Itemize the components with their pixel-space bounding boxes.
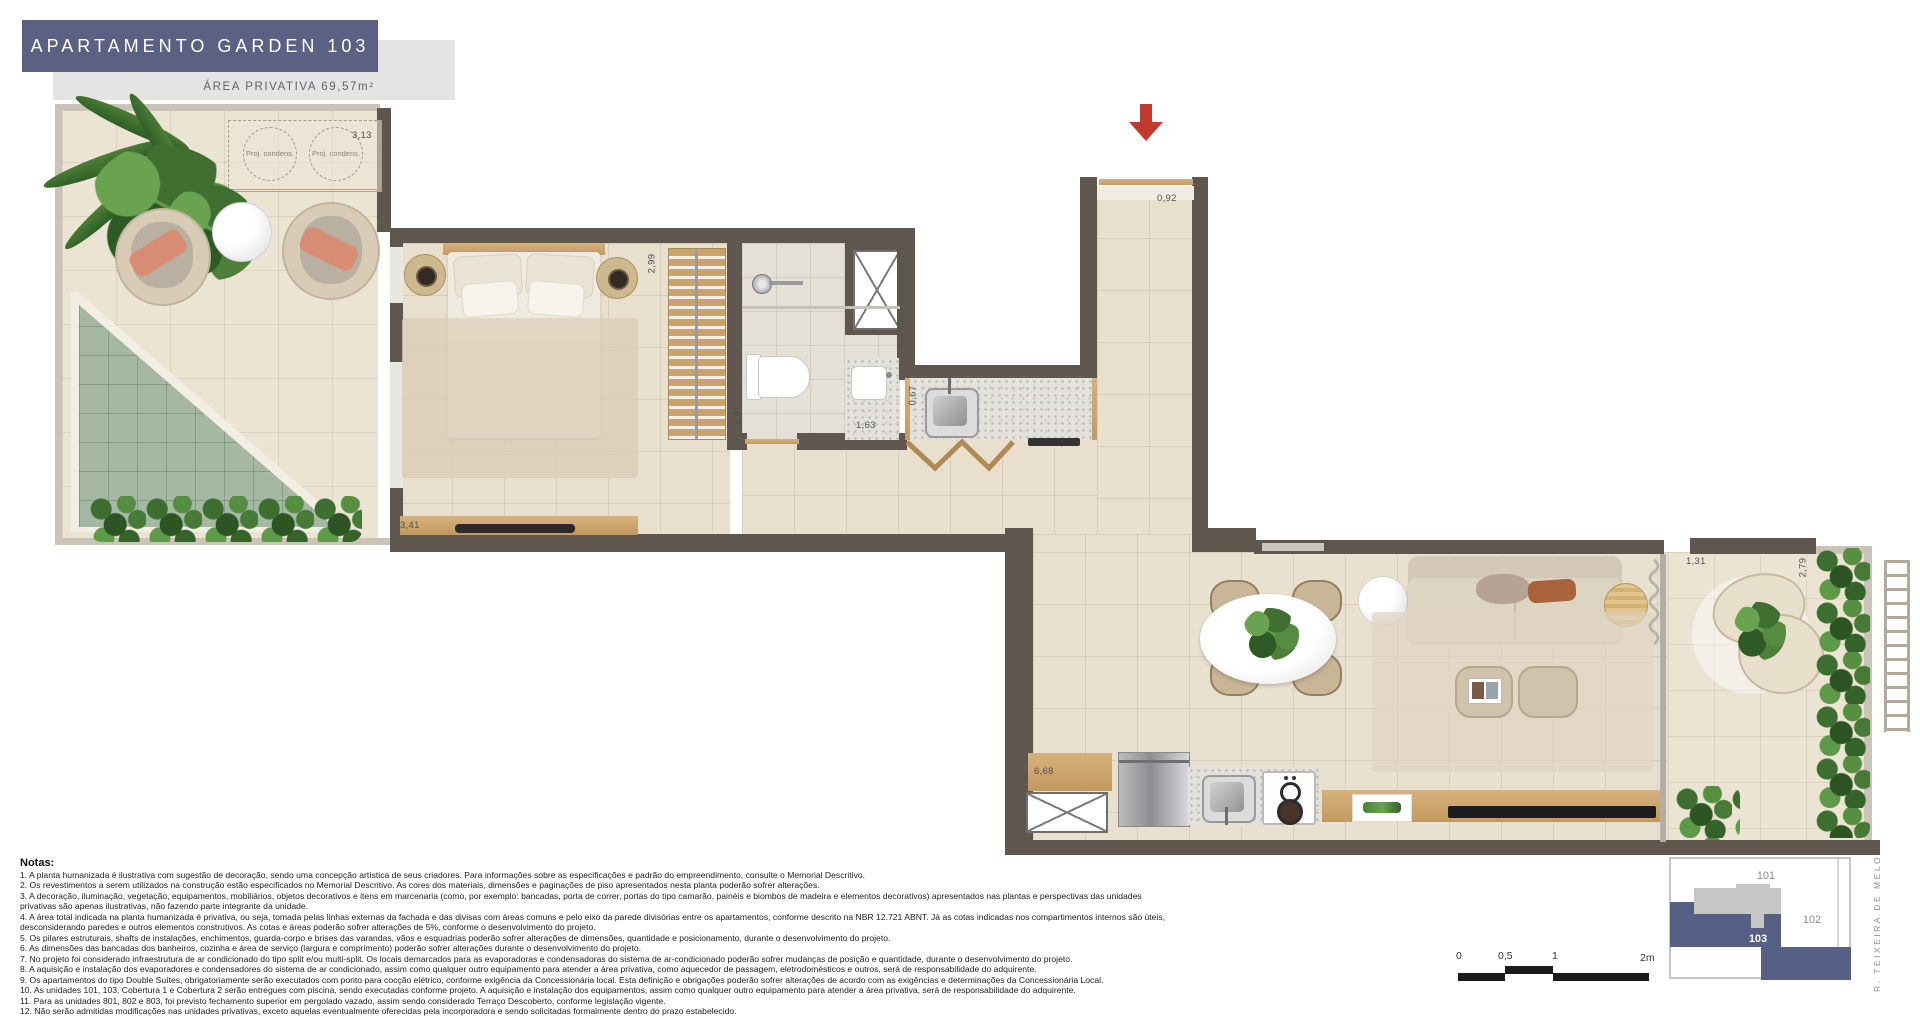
- note-item: 12. Não serão admitidas modificações nas…: [20, 1006, 1175, 1016]
- street-label: R. TEIXEIRA DE MELO: [1872, 852, 1882, 992]
- cooktop-icon: [1262, 771, 1316, 825]
- entrance-arrow-head-icon: [1129, 122, 1163, 141]
- floorplan-page: ÁREA PRIVATIVA 69,57m² APARTAMENTO GARDE…: [0, 0, 1920, 1023]
- scale-bar: 0 0,5 1 2m: [1452, 950, 1667, 990]
- wing-top-window: [1262, 543, 1324, 551]
- pouf-with-books: [1455, 666, 1513, 718]
- note-item: 11. Para as unidades 801, 802 e 803, foi…: [20, 996, 1175, 1006]
- pouf: [1518, 666, 1578, 718]
- notes-title: Notas:: [20, 857, 1175, 869]
- scale-tick: 0,5: [1498, 950, 1513, 962]
- terrace-hedge: [1816, 548, 1870, 838]
- notes-block: Notas: 1. A planta humanizada é ilustrat…: [20, 857, 1175, 1017]
- note-item: 4. A área total indicada na planta human…: [20, 912, 1175, 933]
- wall-strip-bottom: [390, 534, 1005, 552]
- trellis: [1884, 560, 1910, 732]
- dimension-label: 1,31: [1686, 556, 1706, 567]
- note-item: 2. Os revestimentos a serem utilizados n…: [20, 880, 1175, 890]
- apartment-title: APARTAMENTO GARDEN 103: [31, 36, 370, 57]
- lamp-icon: [416, 266, 437, 287]
- wardrobe-rod: [695, 249, 698, 439]
- shower-divider: [742, 306, 900, 309]
- note-item: 3. A decoração, iluminação, vegetação, e…: [20, 891, 1175, 912]
- note-item: 1. A planta humanizada é ilustrativa com…: [20, 870, 1175, 880]
- note-item: 6. As dimensões das bancadas dos banheir…: [20, 943, 1175, 953]
- bathroom-door: [745, 439, 799, 444]
- lounge-chair-right: [282, 202, 380, 300]
- garden-window-1: [390, 247, 403, 303]
- keyplan-unit-101-label: 101: [1757, 870, 1775, 882]
- wall-void-left: [897, 228, 915, 380]
- dimension-label: 3,13: [352, 130, 372, 141]
- living-rug: [1372, 612, 1654, 772]
- dimension-label: 0,67: [907, 386, 918, 406]
- kitchen-sink-icon: [1202, 775, 1256, 823]
- table-plant: [1243, 608, 1299, 660]
- dishwasher: [1118, 752, 1190, 827]
- lamp-icon: [608, 269, 629, 290]
- condenser-projection-1: Proj. condens.: [243, 127, 297, 181]
- entry-threshold: [1097, 186, 1194, 200]
- note-item: 5. Os pilares estruturais, shafts de ins…: [20, 933, 1175, 943]
- dimension-label: 2,79: [1797, 558, 1808, 578]
- shower-arm-icon: [769, 281, 803, 285]
- curtain: [1644, 558, 1664, 648]
- garden-side-table: [212, 202, 272, 262]
- living-tv: [1448, 806, 1656, 818]
- folding-doors: [905, 438, 1015, 474]
- dimension-label: 3,41: [400, 520, 420, 531]
- tray-plant: [1363, 802, 1401, 813]
- dimension-label: 2,99: [646, 254, 657, 274]
- dimension-label: 1,91: [732, 406, 743, 426]
- entrance-arrow-icon: [1140, 104, 1152, 124]
- scale-tick: 0: [1456, 950, 1462, 962]
- sofa-pillow: [1476, 574, 1530, 604]
- lounge-chair-left: [115, 208, 211, 306]
- decor-tray: [1352, 794, 1412, 822]
- condenser-label: Proj. condens.: [246, 150, 294, 159]
- nightstand-left: [404, 254, 446, 296]
- wall-wing-top-corner: [1192, 528, 1256, 552]
- sofa-pillow: [1527, 578, 1576, 603]
- faucet-icon: [948, 378, 951, 394]
- note-item: 7. No projeto foi considerado infraestru…: [20, 954, 1175, 964]
- note-item: 10. As unidades 101, 103, Cobertura 1 e …: [20, 985, 1175, 995]
- dimension-label: 6,68: [1034, 766, 1054, 777]
- shaft-box-bath: [853, 250, 901, 330]
- title-banner: APARTAMENTO GARDEN 103: [22, 20, 378, 72]
- entry-corridor-floor: [1097, 186, 1194, 538]
- bedroom-rug: [402, 318, 638, 478]
- counter-edge-right: [1092, 378, 1097, 440]
- counter-sink-icon: [925, 388, 979, 438]
- faucet-icon: [1225, 807, 1228, 825]
- wardrobe: [668, 248, 726, 440]
- toilet-icon: [758, 356, 810, 398]
- nightstand-right: [596, 257, 638, 299]
- terrace-plant-corner: [1676, 786, 1740, 840]
- notes-list: 1. A planta humanizada é ilustrativa com…: [20, 870, 1175, 1017]
- garden-hedge: [90, 496, 362, 542]
- wall-terrace-top: [1690, 538, 1816, 554]
- condenser-label: Proj. condens.: [312, 150, 360, 159]
- pool-edge-left: [71, 292, 79, 532]
- wall-bath-bottom-a: [727, 433, 747, 450]
- built-in-oven: [1028, 438, 1080, 446]
- wall-corridor-left: [1080, 177, 1097, 380]
- bedroom-tv: [455, 524, 575, 533]
- note-item: 9. Os apartamentos do tipo Double Suítes…: [20, 975, 1175, 985]
- scale-tick: 1: [1552, 950, 1558, 962]
- wall-bedroom-top: [390, 228, 915, 243]
- dimension-label: 0,92: [1157, 193, 1177, 204]
- entry-door: [1099, 179, 1193, 185]
- dimension-label: 1,63: [856, 420, 876, 431]
- note-item: 8. A aquisição e instalação dos evaporad…: [20, 964, 1175, 974]
- keyplan-unit-103-shape: [1670, 902, 1694, 947]
- scale-tick: 2m: [1640, 952, 1655, 964]
- terrace-plant: [1734, 602, 1786, 660]
- keyplan-unit-102-label: 102: [1803, 914, 1821, 926]
- faucet-icon: [886, 372, 892, 378]
- keyplan-unit-103-label: 103: [1749, 933, 1767, 945]
- wall-corridor-right: [1192, 177, 1208, 552]
- washbasin-icon: [851, 366, 887, 400]
- books: [1468, 678, 1502, 704]
- shaft-box-kitchen: [1026, 792, 1108, 833]
